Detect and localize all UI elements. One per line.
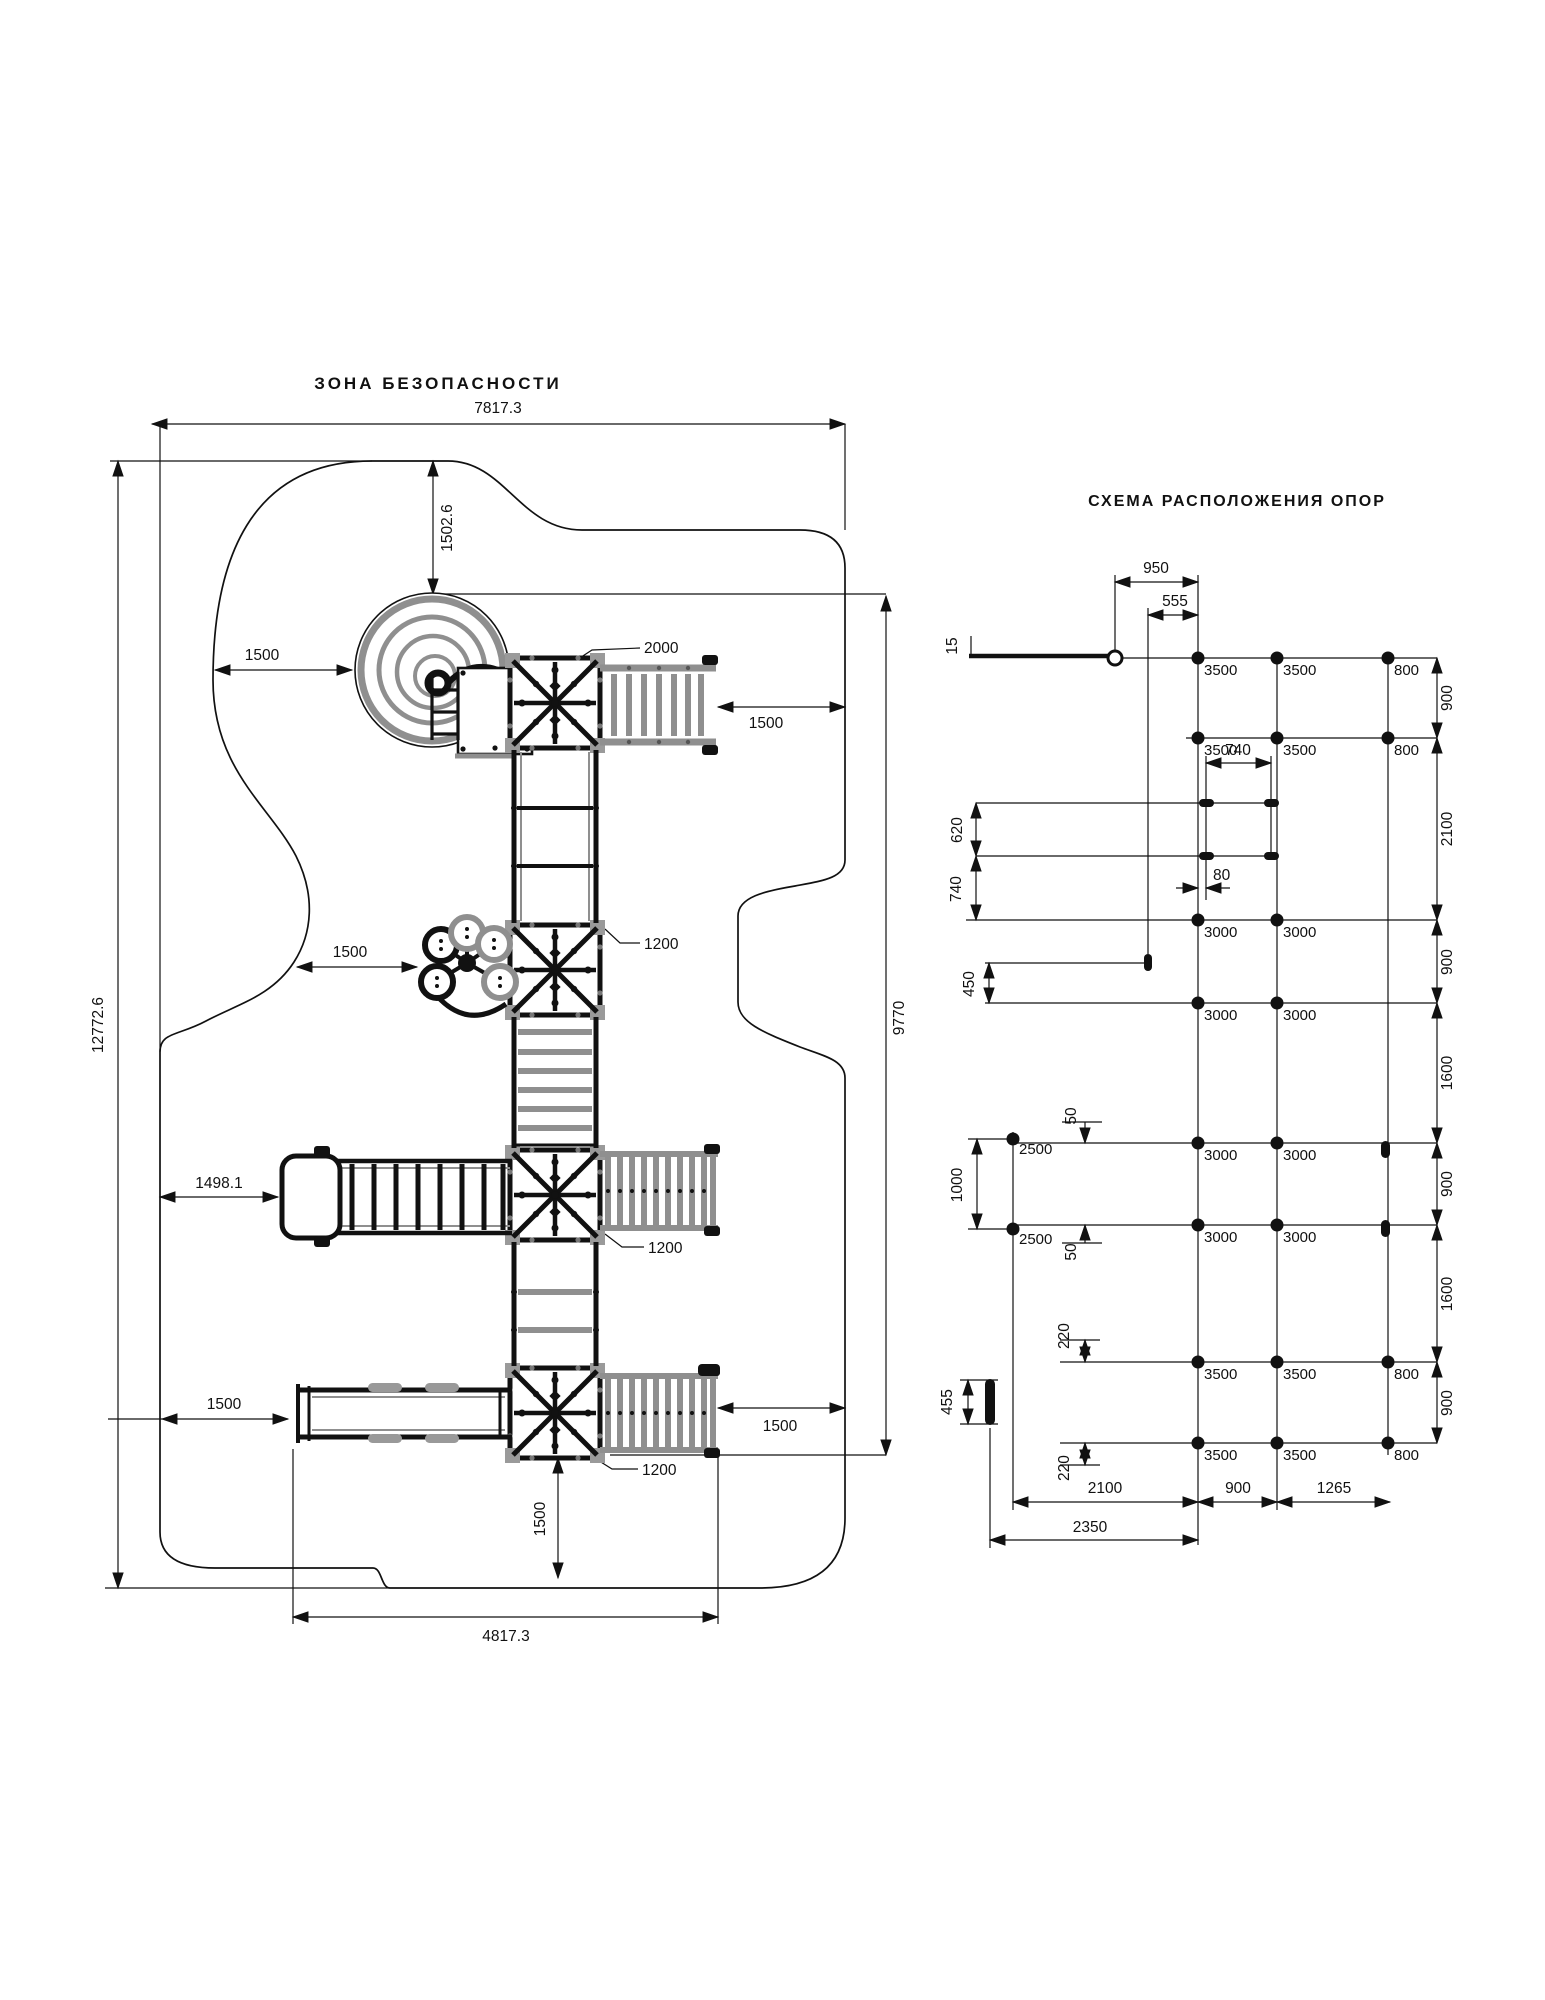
dim-900-bottom: 900 <box>1225 1480 1251 1497</box>
dim-right-4: 900 <box>1439 1171 1456 1197</box>
support-label: 3000 <box>1283 1229 1316 1246</box>
support-scheme: СХЕМА РАСПОЛОЖЕНИЯ ОПОР 950 555 15 620 7… <box>939 493 1456 1548</box>
dim-1000: 1000 <box>949 1167 966 1202</box>
dim-right-1: 2100 <box>1439 811 1456 846</box>
dim-zone-height: 12772.6 <box>90 997 107 1053</box>
dim-2350: 2350 <box>1073 1519 1108 1536</box>
dim-555: 555 <box>1162 593 1188 610</box>
dim-ramp-left: 1498.1 <box>195 1175 242 1192</box>
dim-950: 950 <box>1143 560 1169 577</box>
left-title: ЗОНА БЕЗОПАСНОСТИ <box>314 374 561 393</box>
support-label: 800 <box>1394 742 1419 759</box>
dim-spiral-left: 1500 <box>245 647 280 664</box>
dim-tower4: 1200 <box>642 1462 677 1479</box>
support-label: 3000 <box>1204 1229 1237 1246</box>
dim-bottom-clearance: 1500 <box>532 1501 549 1536</box>
dim-slide-left: 1500 <box>207 1396 242 1413</box>
support-labels: 3500 3500 800 3500 3500 800 3000 3000 30… <box>1019 662 1419 1464</box>
dim-tower2: 1200 <box>644 936 679 953</box>
tower-4 <box>505 1363 605 1463</box>
support-label: 2500 <box>1019 1141 1052 1158</box>
dim-equip-height: 9770 <box>891 1000 908 1035</box>
flower-climber <box>421 917 516 1015</box>
comb-ladder-bottom <box>600 1366 720 1458</box>
dim-right-3: 1600 <box>1439 1055 1456 1090</box>
support-label: 3000 <box>1283 1007 1316 1024</box>
extension-lines <box>105 424 886 1624</box>
comb-ladder-middle <box>600 1144 720 1236</box>
tower-3 <box>505 1145 605 1245</box>
dim-1265: 1265 <box>1317 1480 1351 1497</box>
dim-bottom-right: 1500 <box>763 1418 798 1435</box>
support-label: 3500 <box>1204 1366 1237 1383</box>
support-label: 3500 <box>1283 1447 1316 1464</box>
dim-15: 15 <box>944 637 961 654</box>
support-label: 3500 <box>1283 742 1316 759</box>
scheme-dimensions <box>968 582 1437 1540</box>
bridge-3 <box>511 1242 599 1366</box>
support-label: 3500 <box>1204 742 1237 759</box>
bridge-1 <box>511 750 599 923</box>
support-label: 800 <box>1394 1366 1419 1383</box>
dim-tower-top: 2000 <box>644 640 679 657</box>
dim-top-clearance: 1502.6 <box>439 504 456 551</box>
ladder-top-right <box>600 655 718 755</box>
support-label: 3000 <box>1283 1147 1316 1164</box>
support-points <box>985 651 1395 1450</box>
dim-220-upper: 220 <box>1056 1323 1073 1349</box>
support-label: 3000 <box>1204 924 1237 941</box>
support-label: 3000 <box>1204 1007 1237 1024</box>
safety-zone-plan: ЗОНА БЕЗОПАСНОСТИ 7817.3 12772.6 1502.6 … <box>90 374 908 1645</box>
dim-right-2: 900 <box>1439 949 1456 975</box>
dim-equip-width: 4817.3 <box>482 1628 529 1645</box>
support-anchor-circle <box>1108 651 1122 665</box>
climb-ramp <box>282 1146 512 1247</box>
support-label: 3500 <box>1283 662 1316 679</box>
slide <box>296 1383 512 1443</box>
support-label: 3000 <box>1283 924 1316 941</box>
dim-50-lower: 50 <box>1063 1243 1080 1261</box>
dim-top-right: 1500 <box>749 715 784 732</box>
scheme-grid <box>960 575 1437 1548</box>
tower-1 <box>505 653 605 753</box>
dim-right-6: 900 <box>1439 1390 1456 1416</box>
support-label: 3500 <box>1204 662 1237 679</box>
dim-620: 620 <box>949 817 966 843</box>
dim-tower3: 1200 <box>648 1240 683 1257</box>
bridge-2 <box>514 1017 596 1148</box>
ladder-corner-bracket <box>698 1364 720 1376</box>
dim-zone-width: 7817.3 <box>474 400 521 417</box>
dim-740-left: 740 <box>948 876 965 902</box>
dim-220-lower: 220 <box>1056 1455 1073 1481</box>
drawing-sheet: ЗОНА БЕЗОПАСНОСТИ 7817.3 12772.6 1502.6 … <box>0 0 1545 2000</box>
support-label: 3500 <box>1204 1447 1237 1464</box>
dim-2100: 2100 <box>1088 1480 1123 1497</box>
dim-right-5: 1600 <box>1439 1276 1456 1311</box>
dim-455: 455 <box>939 1389 956 1415</box>
support-label: 800 <box>1394 662 1419 679</box>
tower-2 <box>505 920 605 1020</box>
cad-drawing: ЗОНА БЕЗОПАСНОСТИ 7817.3 12772.6 1502.6 … <box>0 0 1545 2000</box>
support-label: 800 <box>1394 1447 1419 1464</box>
right-title: СХЕМА РАСПОЛОЖЕНИЯ ОПОР <box>1088 493 1386 510</box>
dim-climber-left: 1500 <box>333 944 368 961</box>
dim-50-upper: 50 <box>1063 1107 1080 1125</box>
support-label: 3500 <box>1283 1366 1316 1383</box>
support-label: 3000 <box>1204 1147 1237 1164</box>
dim-right-0: 900 <box>1439 685 1456 711</box>
dim-450: 450 <box>961 971 978 997</box>
support-label: 2500 <box>1019 1231 1052 1248</box>
dim-80: 80 <box>1213 867 1231 884</box>
